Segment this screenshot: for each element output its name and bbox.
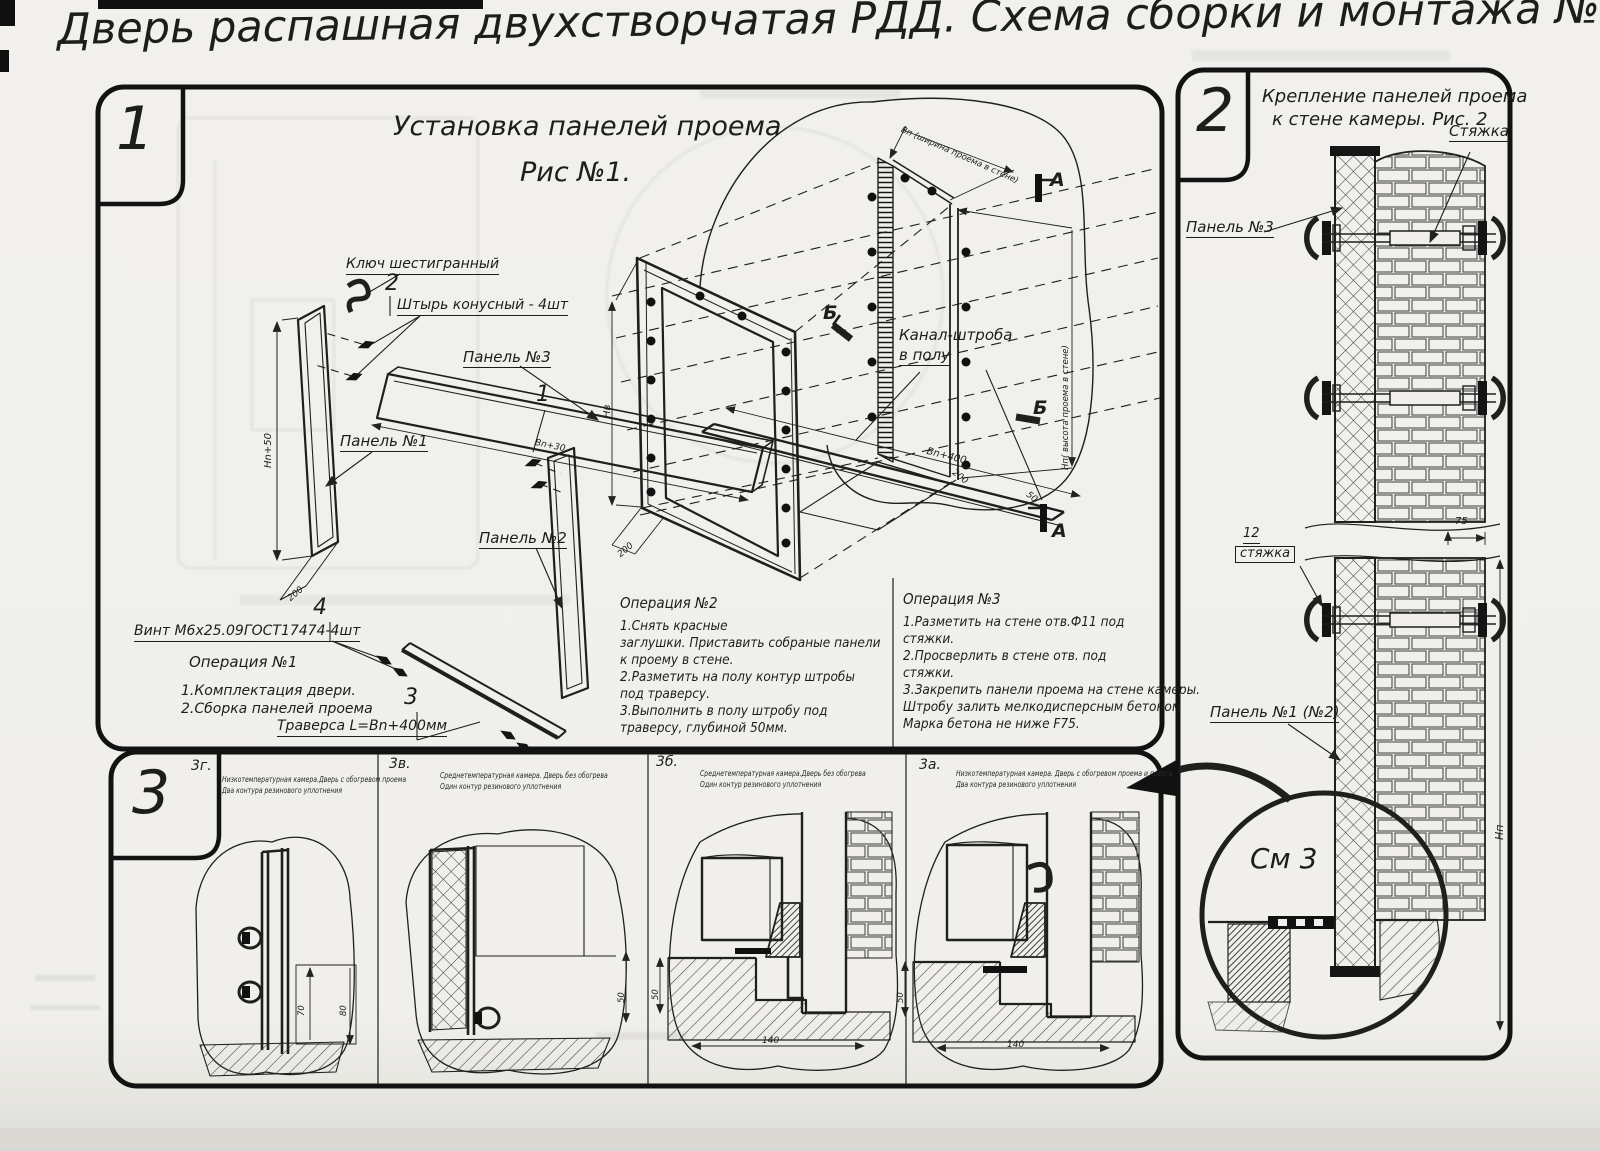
section2-number: 2	[1196, 78, 1234, 145]
op2-line: заглушки. Приставить собраные панели	[620, 635, 881, 652]
see-detail-3: См 3	[1250, 843, 1317, 874]
op1-line: 1.Комплектация двери.	[181, 684, 356, 700]
label-tie-boxed: стяжка	[1235, 546, 1295, 563]
callout-12: 12	[1243, 527, 1260, 544]
op3-line: Штробу залить мелкодисперсным бетоном	[903, 699, 1200, 716]
scanned-assembly-drawing: Дверь распашная двухстворчатая РДД. Схем…	[0, 0, 1600, 1151]
op3-line: 1.Разметить на стене отв.Ф11 под	[903, 614, 1200, 631]
label-panel3: Панель №3	[463, 349, 551, 368]
dim-75: 75	[1455, 516, 1468, 527]
label-hex-key: Ключ шестигранный	[346, 257, 499, 275]
detail-3a	[905, 812, 1143, 1070]
label-floor-channel: Канал-штроба	[899, 327, 1012, 344]
detail-label-3a: 3а.	[919, 758, 941, 774]
dim-hn-vertical: Нп	[1494, 825, 1506, 840]
dim-50: 50	[652, 989, 662, 1000]
op1-line: 2.Сборка панелей проема	[181, 702, 373, 718]
label-panel1-2: Панель №1 (№2)	[1210, 704, 1339, 723]
detail-caption-3b: Среднетемпературная камера.Дверь без обо…	[700, 768, 866, 790]
bottom-paper-band	[0, 1128, 1600, 1151]
detail-3v	[406, 830, 626, 1074]
cut-marker-A: А	[1050, 170, 1065, 191]
caption-line: Один контур резинового уплотнения	[700, 779, 866, 790]
scan-bleedthrough-ghosts	[30, 50, 1450, 1040]
label-panel1: Панель №1	[340, 433, 428, 452]
op2-line: 1.Снять красные	[620, 618, 881, 635]
op3-title: Операция №3	[903, 591, 1200, 608]
fig2-title: Крепление панелей проема	[1262, 87, 1527, 107]
caption-line: Два контура резинового уплотнения	[956, 779, 1172, 790]
callout-1: 1	[536, 383, 550, 408]
op3-line: стяжки.	[903, 631, 1200, 648]
op1-title: Операция №1	[189, 654, 297, 671]
caption-line: Низкотемпературная камера.Дверь с обогре…	[222, 774, 406, 785]
caption-line: Низкотемпературная камера. Дверь с обогр…	[956, 768, 1172, 779]
detail-caption-3a: Низкотемпературная камера. Дверь с обогр…	[956, 768, 1172, 790]
label-panel3-section: Панель №3	[1186, 219, 1274, 238]
dim-hn50: Hn+50	[263, 433, 274, 468]
caption-line: Среднетемпературная камера. Дверь без об…	[440, 770, 608, 781]
callout-4: 4	[313, 596, 327, 621]
hex-key-icon	[348, 281, 368, 312]
dim-hv: Нв	[602, 405, 613, 418]
fig1-title: Установка панелей проема	[393, 112, 781, 142]
label-tie-rod: Стяжка	[1449, 123, 1509, 142]
see-detail-arrow	[1172, 766, 1290, 800]
op2-line: к проему в стене.	[620, 652, 881, 669]
op2-line: 2.Разметить на полу контур штробы	[620, 669, 881, 686]
op2-line: 3.Выполнить в полу штробу под	[620, 703, 881, 720]
callout-2: 2	[385, 272, 399, 297]
cut-marker-A: А	[1052, 521, 1067, 542]
op2-line: траверсу, глубиной 50мм.	[620, 720, 881, 737]
caption-line: Два контура резинового уплотнения	[222, 785, 406, 796]
drawing-linework	[0, 0, 1600, 1151]
op3-line: Марка бетона не ниже F75.	[903, 716, 1200, 733]
op3-line: 2.Просверлить в стене отв. под	[903, 648, 1200, 665]
floor-heater-block	[1228, 924, 1290, 1002]
detail-3g	[196, 837, 356, 1076]
fig1-subtitle: Рис №1.	[520, 158, 631, 188]
dim-50: 50	[897, 992, 907, 1003]
label-floor-channel: в полу	[899, 347, 950, 366]
caption-line: Среднетемпературная камера.Дверь без обо…	[700, 768, 866, 779]
dim-opening-height-note: Нп( высота проема в стене)	[1062, 345, 1072, 470]
callout-3: 3	[404, 686, 418, 711]
label-panel2: Панель №2	[479, 530, 567, 549]
dim-50: 50	[618, 992, 628, 1003]
label-cone-pin: Штырь конусный - 4шт	[397, 298, 568, 316]
dim-80: 80	[340, 1005, 350, 1016]
detail-caption-3v: Среднетемпературная камера. Дверь без об…	[440, 770, 608, 792]
detail-label-3v: 3в.	[389, 757, 411, 773]
op3-line: 3.Закрепить панели проема на стене камер…	[903, 682, 1200, 699]
dim-70: 70	[298, 1005, 308, 1016]
section1-number: 1	[116, 96, 154, 163]
label-traverse: Траверса L=Bn+400мм	[277, 719, 447, 737]
detail-label-3b: 3б.	[656, 755, 678, 771]
cut-marker-B: Б	[1033, 398, 1047, 419]
op3-line: стяжки.	[903, 665, 1200, 682]
label-screw: Винт М6х25.09ГОСТ17474-4шт	[134, 624, 360, 642]
section3-number: 3	[132, 760, 170, 827]
section-cut-markers	[1035, 174, 1047, 532]
op2-title: Операция №2	[620, 595, 881, 612]
cut-marker-B: Б	[823, 303, 837, 324]
op2-line: под траверсу.	[620, 686, 881, 703]
detail-3b	[660, 812, 898, 1070]
detail-label-3g: 3г.	[191, 759, 212, 775]
caption-line: Один контур резинового уплотнения	[440, 781, 608, 792]
detail-caption-3g: Низкотемпературная камера.Дверь с обогре…	[222, 774, 406, 796]
dim-140: 140	[762, 1036, 779, 1046]
fig3-threshold-details	[196, 754, 1143, 1084]
op3-block: Операция №3 1.Разметить на стене отв.Ф11…	[903, 591, 1200, 733]
dim-140: 140	[1007, 1040, 1024, 1050]
op2-block: Операция №2 1.Снять красные заглушки. Пр…	[620, 595, 881, 737]
